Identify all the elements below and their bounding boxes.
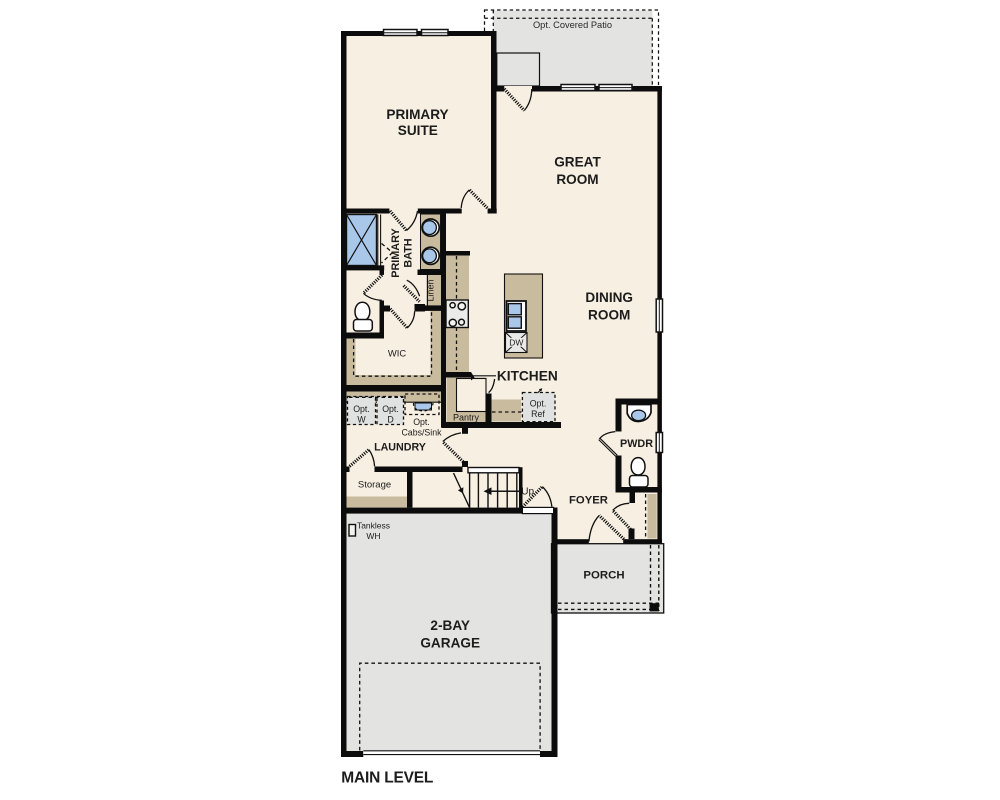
svg-text:Opt. Covered Patio: Opt. Covered Patio	[533, 20, 612, 30]
svg-text:SUITE: SUITE	[398, 123, 438, 138]
svg-text:ROOM: ROOM	[556, 172, 598, 187]
svg-text:D: D	[387, 415, 393, 425]
svg-text:2-BAY: 2-BAY	[430, 618, 470, 633]
svg-text:GARAGE: GARAGE	[420, 635, 480, 650]
svg-text:WH: WH	[366, 531, 380, 541]
svg-text:Linen: Linen	[426, 279, 436, 301]
svg-text:Opt.: Opt.	[382, 404, 399, 414]
svg-text:PRIMARY: PRIMARY	[390, 228, 402, 278]
svg-text:BATH: BATH	[403, 238, 415, 267]
svg-text:MAIN LEVEL: MAIN LEVEL	[341, 769, 433, 786]
svg-text:Opt.: Opt.	[353, 404, 370, 414]
svg-text:W: W	[357, 415, 366, 425]
svg-text:PRIMARY: PRIMARY	[386, 107, 448, 122]
svg-text:ROOM: ROOM	[588, 308, 630, 323]
svg-text:Cabs/Sink: Cabs/Sink	[401, 428, 442, 438]
svg-text:LAUNDRY: LAUNDRY	[374, 441, 426, 453]
svg-text:GREAT: GREAT	[554, 155, 601, 170]
svg-text:Tankless: Tankless	[357, 521, 390, 531]
svg-text:KITCHEN: KITCHEN	[497, 369, 558, 384]
svg-text:Pantry: Pantry	[453, 413, 480, 423]
svg-text:WIC: WIC	[388, 348, 406, 359]
svg-text:Opt.: Opt.	[530, 399, 547, 409]
svg-text:Opt.: Opt.	[413, 417, 430, 427]
svg-text:FOYER: FOYER	[569, 494, 608, 506]
svg-text:DINING: DINING	[585, 290, 633, 305]
svg-text:DW: DW	[509, 338, 523, 348]
svg-text:PORCH: PORCH	[583, 570, 624, 582]
svg-text:Ref: Ref	[531, 409, 545, 419]
svg-text:Storage: Storage	[358, 480, 391, 491]
svg-text:PWDR: PWDR	[620, 438, 653, 450]
